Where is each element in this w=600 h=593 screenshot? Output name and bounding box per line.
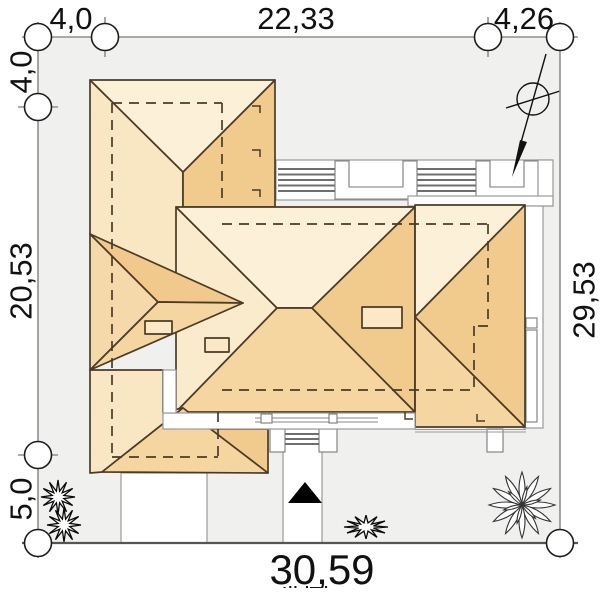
pergola-band <box>276 160 553 206</box>
entry-post-right <box>319 429 337 452</box>
dim-label-left-middle: 20,53 <box>4 242 39 320</box>
roof-right-section <box>415 205 525 427</box>
clipped-caption: Ill lTl <box>281 582 328 588</box>
chimney-1 <box>145 321 172 334</box>
chimney-2 <box>205 338 229 352</box>
wall-strip-left <box>163 370 176 413</box>
dim-label-left-top: 4,0 <box>4 50 39 93</box>
dim-label-right: 29,53 <box>567 261 600 339</box>
chimney-3 <box>362 307 402 328</box>
walkway <box>121 473 207 543</box>
dim-label-left-bottom: 5,0 <box>4 477 39 520</box>
dim-label-top-left: 4,0 <box>49 1 92 36</box>
entry-post-left <box>270 429 285 452</box>
right-terrace-strip <box>524 206 543 428</box>
site-plan-canvas: 4,0 22,33 4,26 4,0 20,53 5,0 29,53 30,59… <box>0 0 600 588</box>
dim-label-top-center: 22,33 <box>257 1 335 36</box>
dim-label-top-right: 4,26 <box>494 1 554 36</box>
site-plan-drawing: 4,0 22,33 4,26 4,0 20,53 5,0 29,53 30,59… <box>0 0 600 588</box>
